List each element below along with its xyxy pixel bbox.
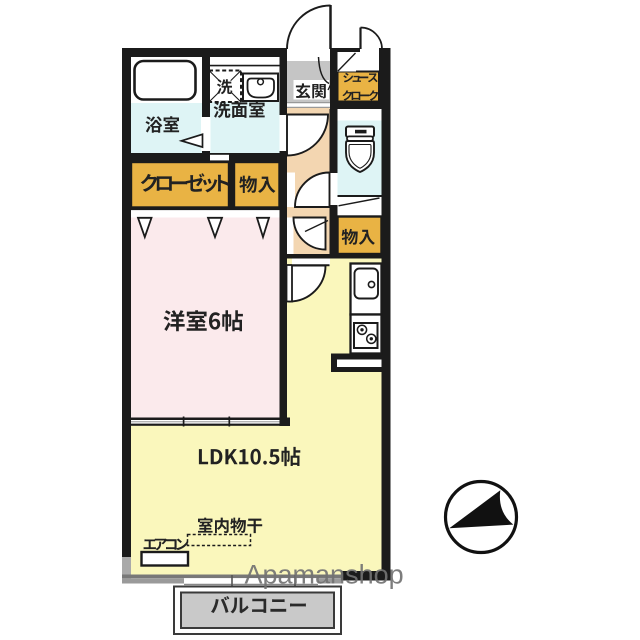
- svg-text:Apamanshop: Apamanshop: [245, 560, 404, 590]
